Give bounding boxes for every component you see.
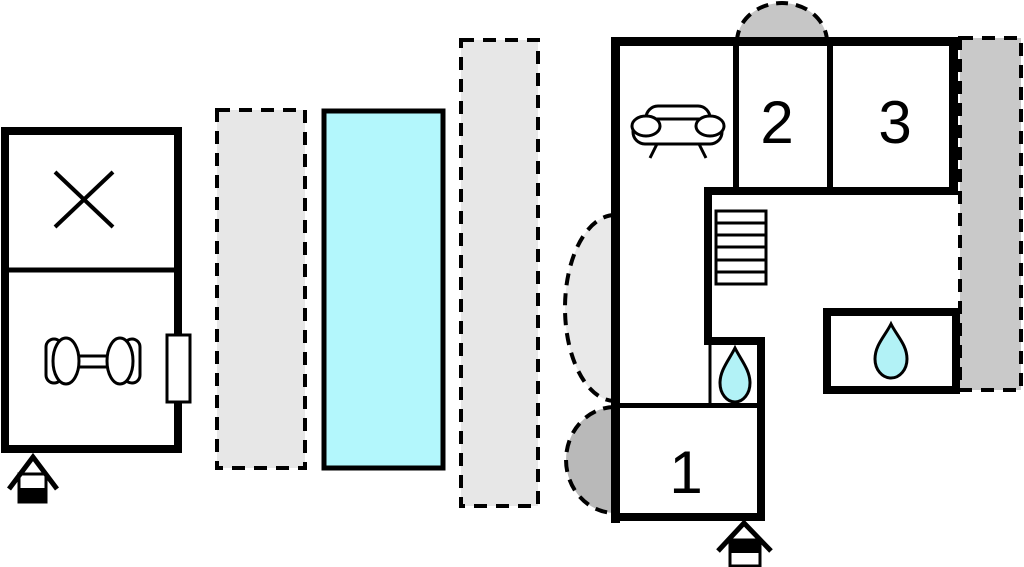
bedroom-3-label: 3 (878, 89, 911, 156)
wall-right-lower (757, 337, 765, 521)
floor-plan-svg: 2 3 1 (0, 0, 1024, 567)
bedroom-1-label: 1 (669, 439, 702, 506)
wall-stairhall-vertical (704, 187, 712, 345)
wall-bottom (611, 513, 765, 521)
swimming-pool (324, 111, 443, 468)
wall-bath-top (704, 337, 765, 345)
wall-top (611, 37, 958, 46)
wall-divider-bed2-bed3 (827, 41, 833, 191)
bedroom-2-label: 2 (760, 89, 793, 156)
terrace-strip-1 (217, 110, 305, 468)
wall-right (949, 37, 958, 195)
outbuilding (5, 131, 190, 449)
wall-bedroom1-top (615, 403, 761, 408)
entrance-icon-main (718, 523, 771, 566)
wall-divider-living-bed2 (733, 41, 739, 191)
stairs-icon (716, 211, 766, 284)
door (167, 335, 190, 402)
bathroom-annex (827, 312, 956, 390)
semicircle-lower-left (566, 407, 615, 513)
semicircle-top (737, 3, 827, 42)
entrance-icon-left (9, 457, 57, 502)
semicircle-upper-left (565, 215, 615, 401)
floor-plan-canvas: 2 3 1 (0, 0, 1024, 567)
terrace-strip-2 (461, 40, 538, 506)
terrace-strip-right (960, 38, 1021, 390)
wall-left (611, 37, 620, 523)
